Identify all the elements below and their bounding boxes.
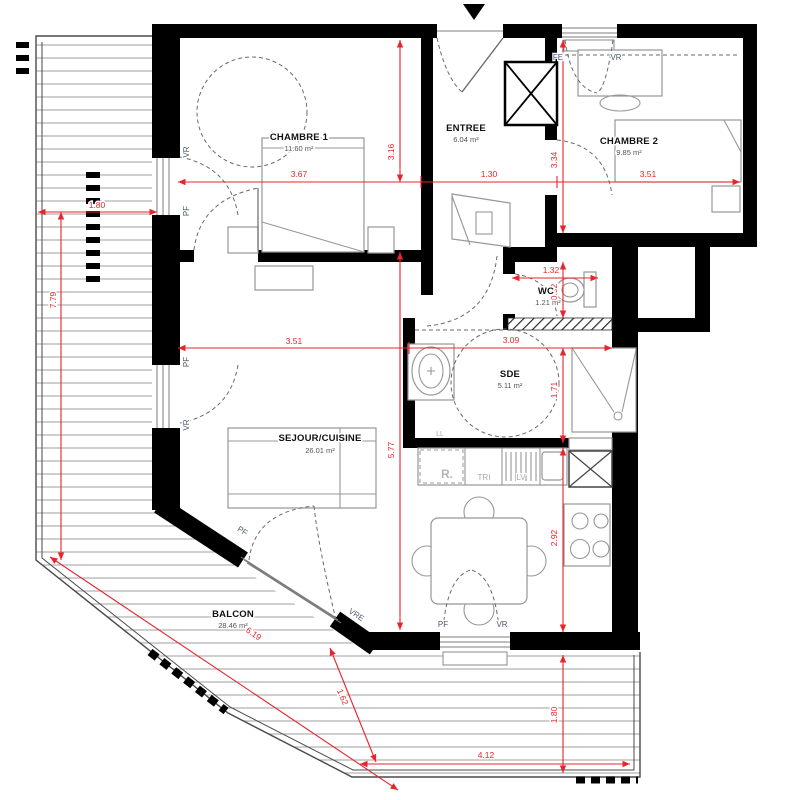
nightstand-icon: [368, 227, 394, 253]
room-name-chambre1: CHAMBRE 1: [270, 132, 329, 143]
chambre2-door-arc: [557, 140, 612, 195]
hall-door-arc: [427, 256, 497, 326]
room-area-entree: 6.04 m²: [453, 135, 479, 144]
opening-label-vr: VR: [182, 419, 191, 430]
room-name-balcon: BALCON: [212, 609, 254, 620]
entrance-door-arc: [437, 38, 462, 92]
opening-label-pf: PF: [182, 206, 191, 216]
dim-chambre1-depth: 3.16: [386, 143, 396, 160]
window-chambre2-top: [562, 28, 617, 51]
opening-label-vr: VR: [610, 53, 621, 62]
opening-label-fe: FE: [553, 53, 563, 62]
closet-icon: [452, 194, 510, 247]
room-name-sejour: SEJOUR/CUISINE: [278, 433, 361, 444]
dim-balcony-left-length: 7.79: [48, 291, 58, 308]
window-sejour-left: [157, 365, 169, 428]
washbasin-icon: [408, 344, 454, 400]
dim-chambre1-width: 3.67: [291, 169, 308, 179]
room-area-sde: 5.11 m²: [498, 381, 523, 390]
sink-icon: [542, 452, 563, 480]
room-name-entree: ENTREE: [446, 123, 486, 134]
chair-icon: [600, 95, 640, 111]
dim-sejour-width: 3.51: [286, 336, 303, 346]
room-name-sde: SDE: [500, 369, 520, 380]
entry-arrow-icon: [463, 4, 485, 20]
bed-icon: [262, 138, 364, 252]
label-sorting: TRI: [478, 473, 491, 482]
window-chambre1-left: [157, 158, 169, 215]
hatched-wall: [508, 318, 612, 330]
opening-label-vr: VR: [182, 146, 191, 157]
dresser-icon: [255, 266, 313, 290]
label-washing-machine: LL: [436, 431, 444, 438]
shaft-icon: [505, 62, 557, 125]
opening-label-pf: PF: [236, 524, 250, 537]
nightstand-icon: [712, 186, 740, 212]
dim-sde-width: 3.09: [503, 335, 520, 345]
dim-wc-width: 1.32: [543, 265, 560, 275]
room-area-sejour: 26.01 m²: [305, 446, 335, 455]
dim-chambre2-width: 3.51: [640, 169, 657, 179]
room-area-chambre1: 11.60 m²: [284, 144, 314, 153]
entrance-door-leaf: [462, 38, 503, 92]
window-bottom: [440, 637, 510, 665]
dim-balcony-south-depth: 1.80: [549, 706, 559, 723]
nightstand-icon: [228, 227, 258, 253]
floor-plan: 1.80 7.79 3.67 1.30 3.51 3.16 3.34 1.32 …: [0, 0, 787, 800]
dim-chambre2-depth: 3.34: [549, 151, 559, 168]
dim-balcony-south-width: 4.12: [478, 750, 495, 760]
tall-cabinet-icon: [569, 451, 612, 487]
dim-balcony-width: 1.80: [89, 200, 106, 210]
room-name-wc: WC: [538, 286, 554, 297]
opening-label-pf: PF: [438, 620, 448, 629]
window-swing-arc: [180, 365, 238, 423]
shower-icon: [572, 348, 636, 432]
room-area-wc: 1.21 m²: [535, 298, 561, 307]
dim-kitchen-depth: 2.92: [549, 529, 559, 546]
room-area-chambre2: 9.85 m²: [616, 148, 642, 157]
dim-entree-width: 1.30: [481, 169, 498, 179]
dim-sejour-depth: 5.77: [386, 441, 396, 458]
floor-plan-drawing: 1.80 7.79 3.67 1.30 3.51 3.16 3.34 1.32 …: [0, 0, 787, 800]
label-fridge: R.: [441, 467, 453, 481]
label-dishwasher: LV: [516, 473, 526, 482]
dining-table-icon: [412, 497, 546, 625]
toilet-icon: [556, 272, 596, 307]
room-name-chambre2: CHAMBRE 2: [600, 136, 658, 147]
stove-icon: [564, 504, 610, 566]
opening-label-pf: PF: [182, 357, 191, 367]
opening-label-vr: VR: [496, 620, 507, 629]
room-area-balcon: 28.46 m²: [218, 621, 248, 630]
dim-sde-depth: 1.71: [549, 381, 559, 398]
